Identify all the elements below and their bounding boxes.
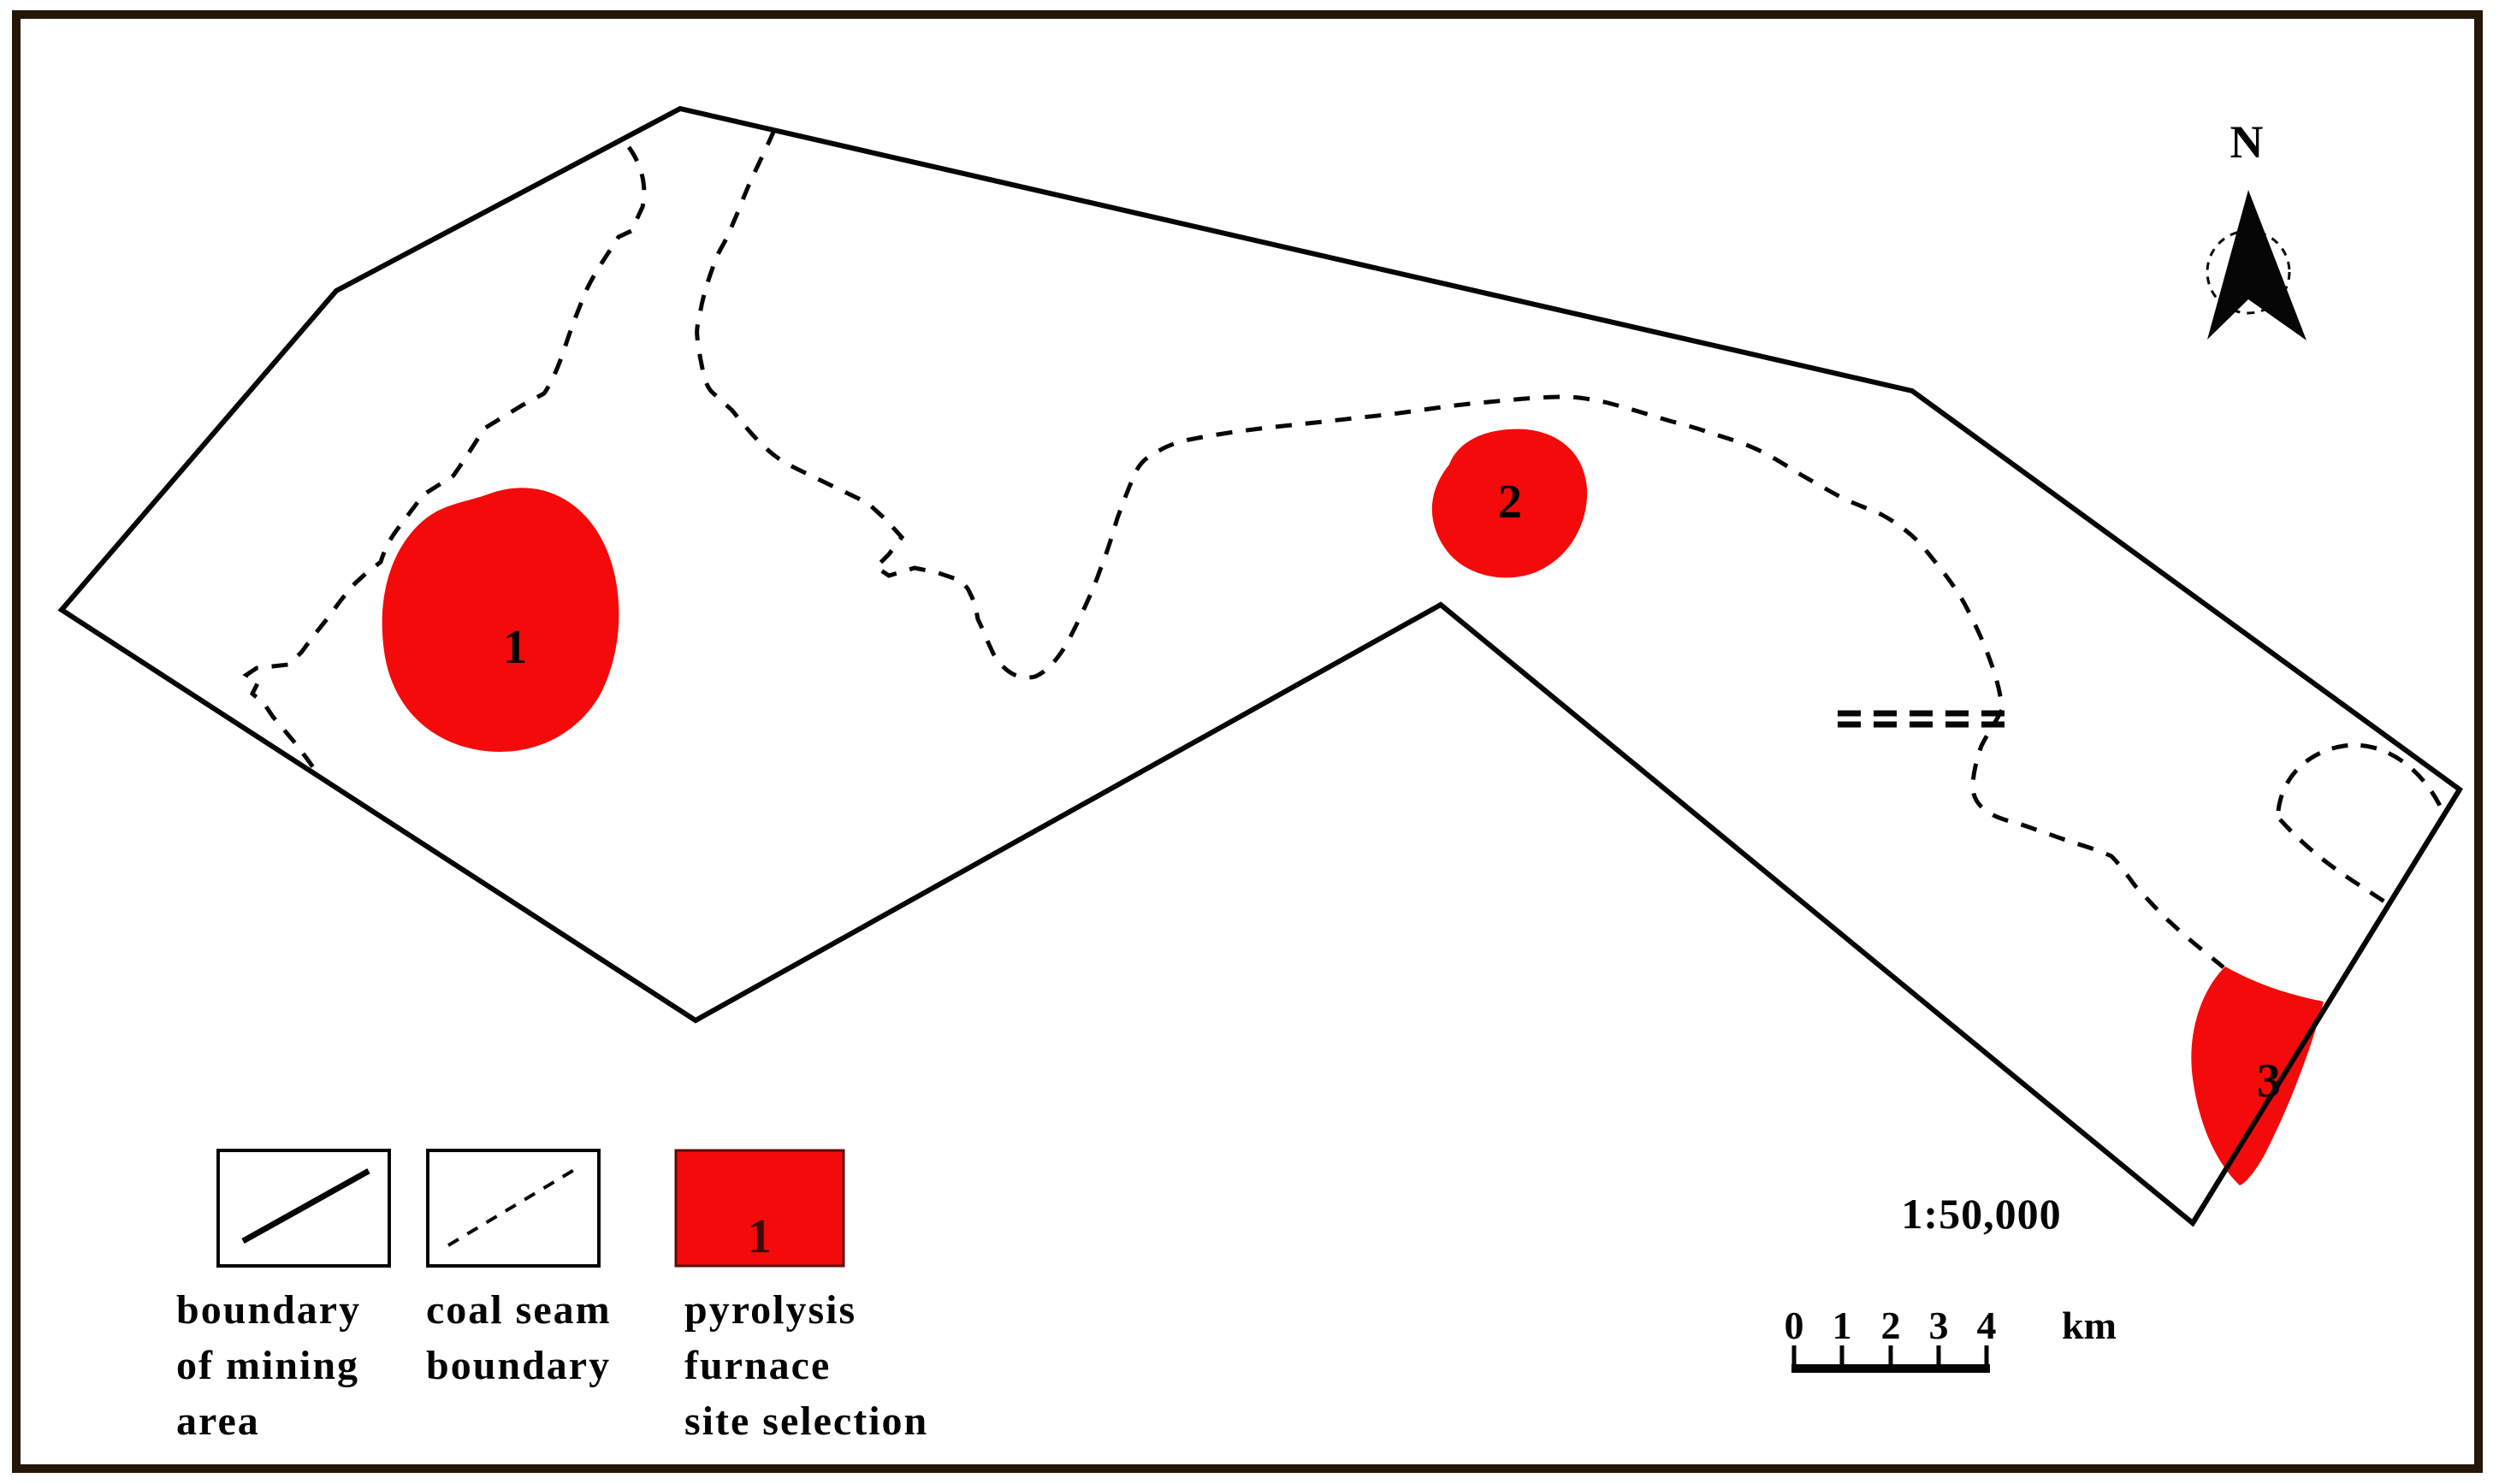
scale-unit-label: km (2062, 1304, 2117, 1347)
legend-label-line: boundary (176, 1287, 361, 1333)
legend-label-line: site selection (684, 1398, 928, 1444)
legend-label-line: area (176, 1398, 260, 1444)
scale-tick-label-1: 1 (1833, 1304, 1852, 1347)
site-2-label: 2 (1498, 476, 1522, 529)
scale-tick-label-4: 4 (1977, 1304, 1997, 1347)
legend-label-line: of mining (176, 1343, 359, 1388)
legend-label-line: boundary (426, 1343, 611, 1388)
scale-tick-label-2: 2 (1881, 1304, 1901, 1347)
legend-label-line: coal seam (426, 1287, 612, 1333)
scale-tick-label-3: 3 (1929, 1304, 1949, 1347)
legend-swatch-number: 1 (748, 1210, 772, 1263)
north-label: N (2230, 116, 2264, 168)
site-1-label: 1 (503, 621, 527, 674)
legend-label-line: pyrolysis (684, 1287, 856, 1333)
scale-ratio-label: 1:50,000 (1901, 1190, 2061, 1238)
scale-tick-label-0: 0 (1785, 1304, 1804, 1347)
mining-map-figure: 1 2 3 N 1:50,000 0 1 2 3 4 km (0, 0, 2499, 1484)
site-1-area (382, 488, 619, 752)
mining-map-page: 1 2 3 N 1:50,000 0 1 2 3 4 km (0, 0, 2499, 1484)
legend-label-line: furnace (684, 1343, 831, 1388)
